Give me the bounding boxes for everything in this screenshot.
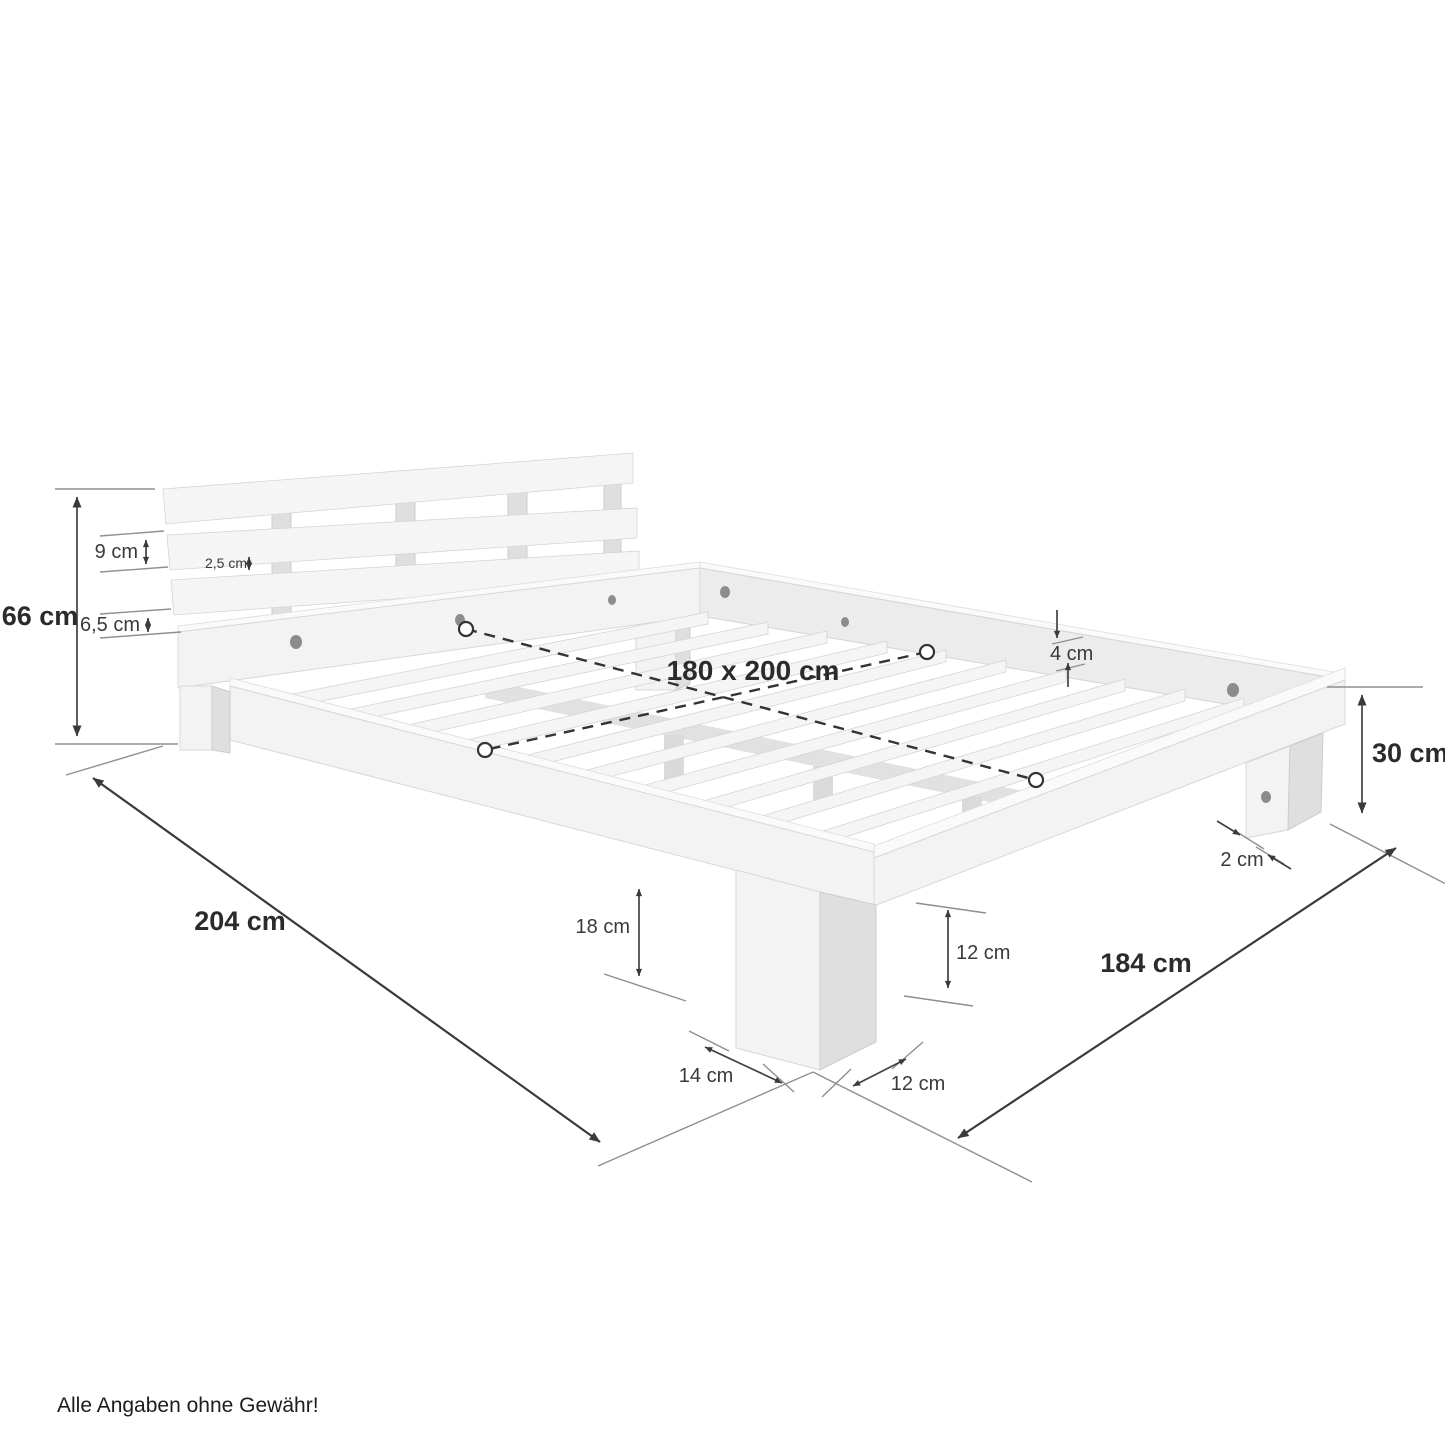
dimension-label-4cm: 4 cm: [1050, 643, 1093, 665]
dimension-label-204cm: 204 cm: [194, 906, 286, 936]
mattress-corner-marker: [478, 743, 492, 757]
dimension-label-14cm: 14 cm: [679, 1065, 733, 1087]
disclaimer-text: Alle Angaben ohne Gewähr!: [57, 1394, 319, 1417]
dimension-label-184cm: 184 cm: [1100, 948, 1192, 978]
bed-dimension-diagram: 180 x 200 cm 66 cm 9 cm 2,5 cm 6,5 cm 4 …: [0, 0, 1445, 1445]
dimension-clearance: 18 cm: [576, 889, 686, 1001]
dimension-label-66cm: 66 cm: [2, 601, 79, 631]
dimension-label-6-5cm: 6,5 cm: [80, 614, 140, 636]
dimension-label-12cm-ground: 12 cm: [891, 1073, 945, 1095]
mattress-corner-marker: [1029, 773, 1043, 787]
mattress-corner-marker: [920, 645, 934, 659]
dimension-bottom-gap: 6,5 cm: [80, 609, 181, 638]
mattress-corner-marker: [459, 622, 473, 636]
dimension-total-width: 184 cm: [813, 848, 1396, 1182]
diagram-canvas: 180 x 200 cm 66 cm 9 cm 2,5 cm 6,5 cm 4 …: [0, 0, 1445, 1445]
dimension-board-gap: 2,5 cm: [205, 555, 249, 571]
foot-front-leg: [736, 870, 876, 1070]
dimension-board-height: 9 cm: [95, 531, 168, 572]
dimension-label-9cm: 9 cm: [95, 541, 138, 563]
dimension-leg-height: 12 cm: [904, 903, 1010, 1006]
dimension-label-30cm: 30 cm: [1372, 738, 1445, 768]
mattress-size-label: 180 x 200 cm: [667, 655, 840, 686]
dimension-label-18cm: 18 cm: [576, 916, 630, 938]
dimension-label-12cm-vertical: 12 cm: [956, 942, 1010, 964]
head-front-leg: [180, 686, 230, 753]
dimension-label-2-5cm: 2,5 cm: [205, 555, 247, 571]
dimension-label-2cm: 2 cm: [1220, 849, 1263, 871]
